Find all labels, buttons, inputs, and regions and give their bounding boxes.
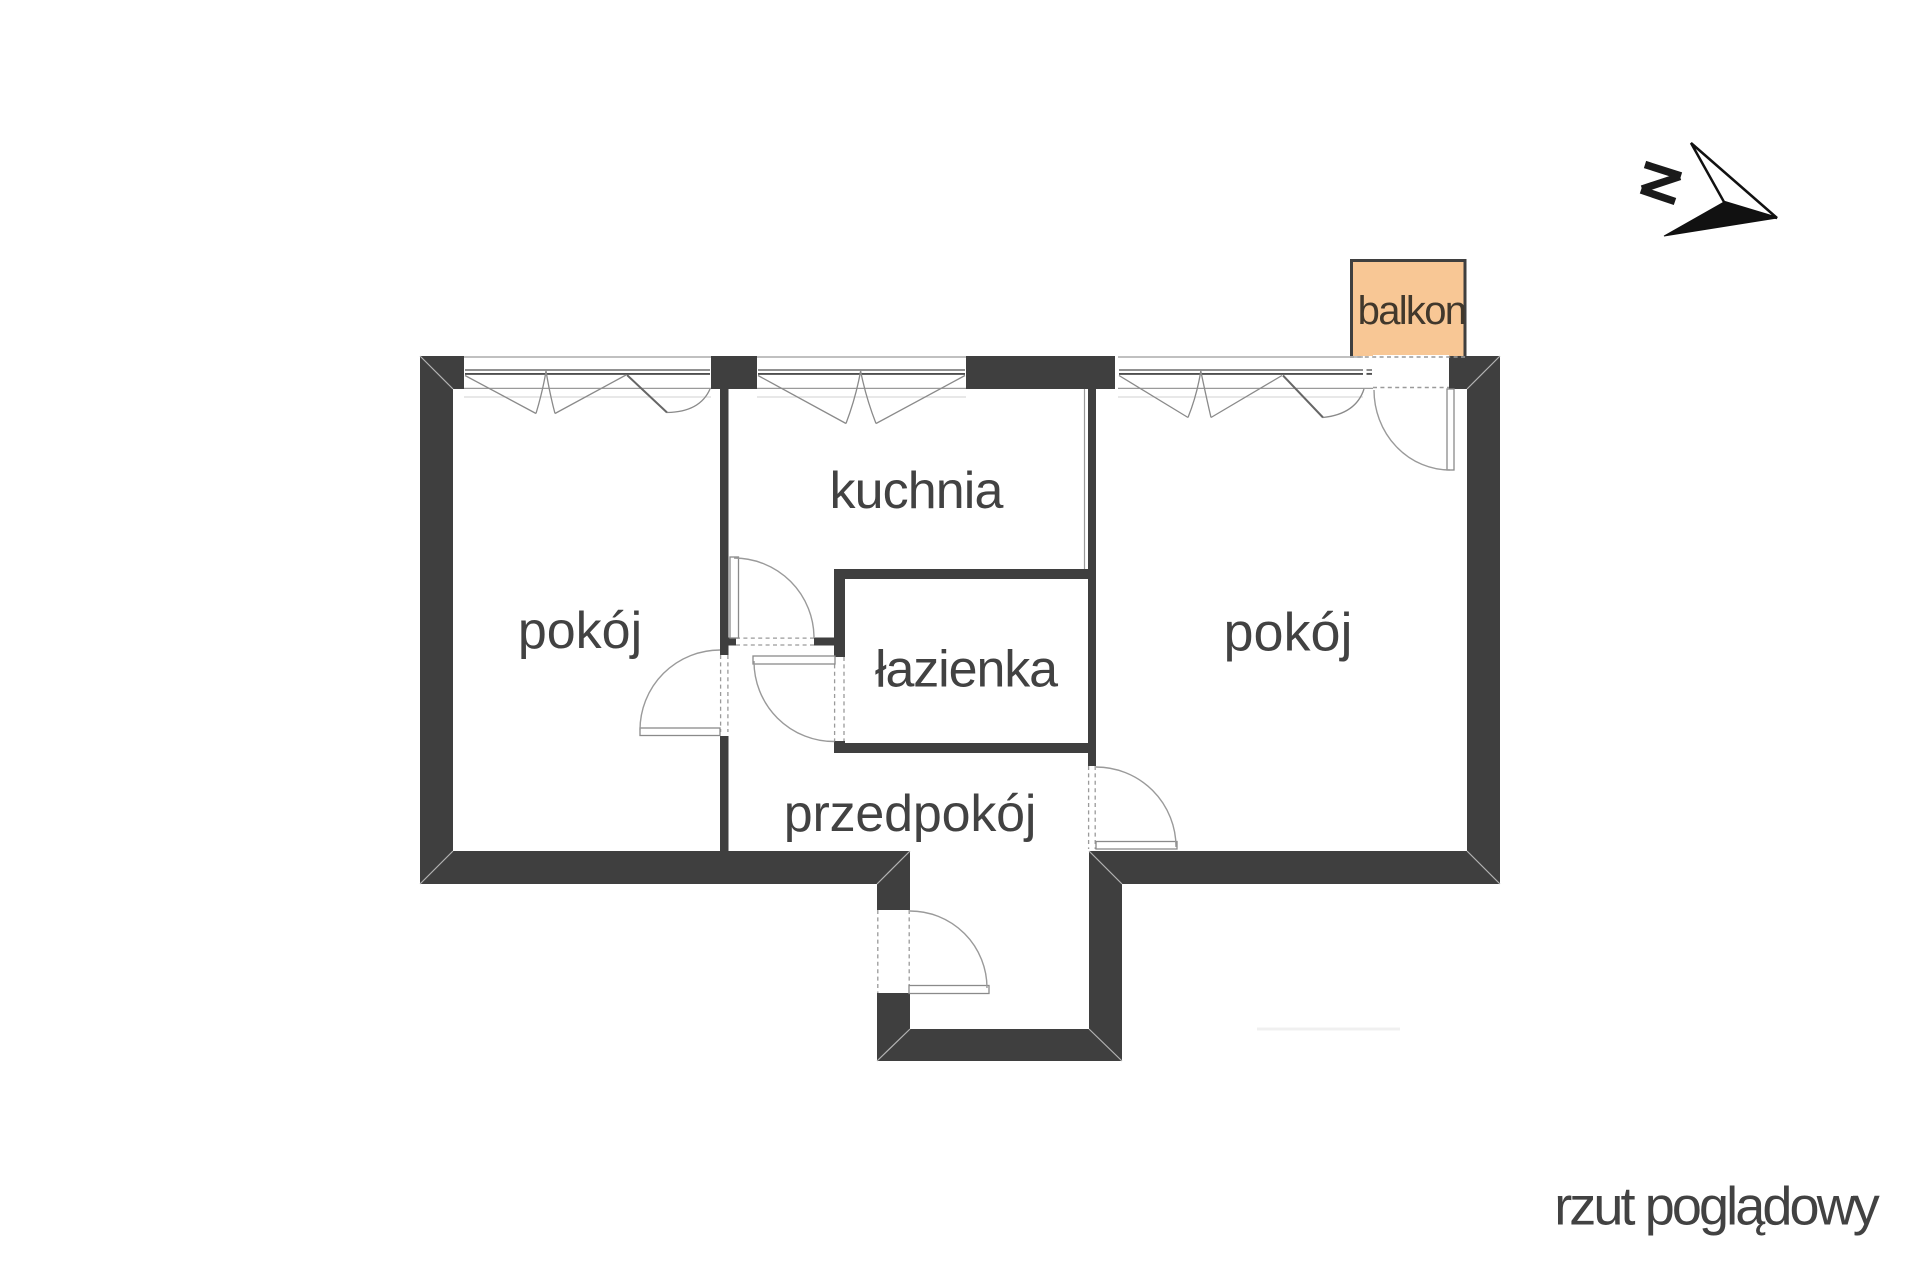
svg-text:balkon: balkon: [1358, 289, 1466, 333]
svg-text:łazienka: łazienka: [875, 641, 1058, 699]
svg-text:rzut poglądowy: rzut poglądowy: [1554, 1177, 1880, 1237]
svg-text:pokój: pokój: [518, 602, 642, 660]
svg-text:przedpokój: przedpokój: [784, 785, 1036, 843]
svg-text:pokój: pokój: [1223, 603, 1352, 663]
svg-text:kuchnia: kuchnia: [830, 462, 1004, 520]
